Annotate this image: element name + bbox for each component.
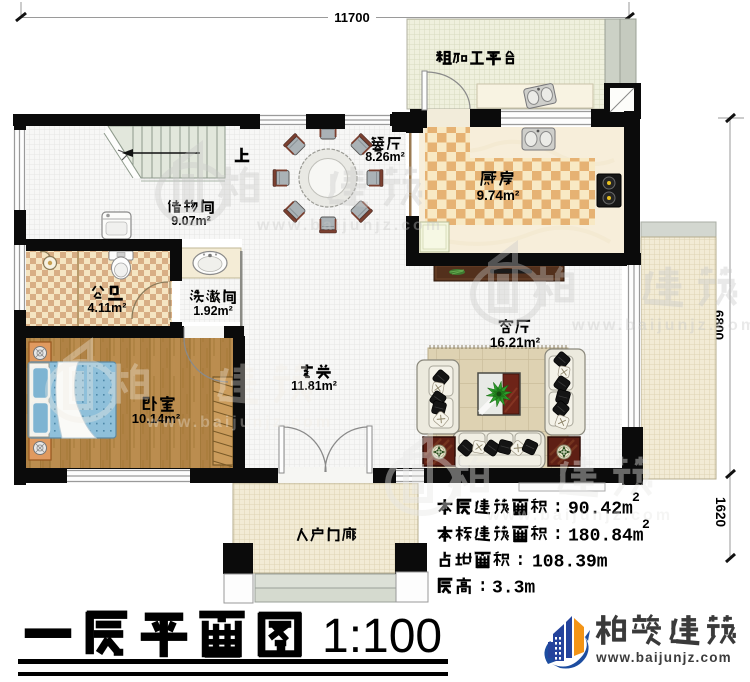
svg-text:www.baijunjz.com: www.baijunjz.com <box>486 507 673 524</box>
svg-text:1:100: 1:100 <box>322 610 442 663</box>
svg-text:4.11m²: 4.11m² <box>88 301 127 315</box>
svg-text:www.baijunjz.com: www.baijunjz.com <box>146 414 333 431</box>
svg-text:1.92m²: 1.92m² <box>193 304 233 318</box>
svg-text:1620: 1620 <box>713 497 728 527</box>
svg-text:www.baijunjz.com: www.baijunjz.com <box>571 317 750 334</box>
svg-text:11700: 11700 <box>334 10 369 25</box>
svg-text:www.baijunjz.com: www.baijunjz.com <box>595 650 732 665</box>
svg-text:180.84m: 180.84m <box>568 527 644 547</box>
svg-text:8.26m²: 8.26m² <box>365 150 405 164</box>
svg-text:3.3m: 3.3m <box>492 579 535 599</box>
svg-text:16.21m²: 16.21m² <box>490 335 541 350</box>
svg-text:9.74m²: 9.74m² <box>477 188 520 203</box>
svg-text:www.baijunjz.com: www.baijunjz.com <box>256 217 443 234</box>
svg-text:108.39m: 108.39m <box>532 553 608 573</box>
